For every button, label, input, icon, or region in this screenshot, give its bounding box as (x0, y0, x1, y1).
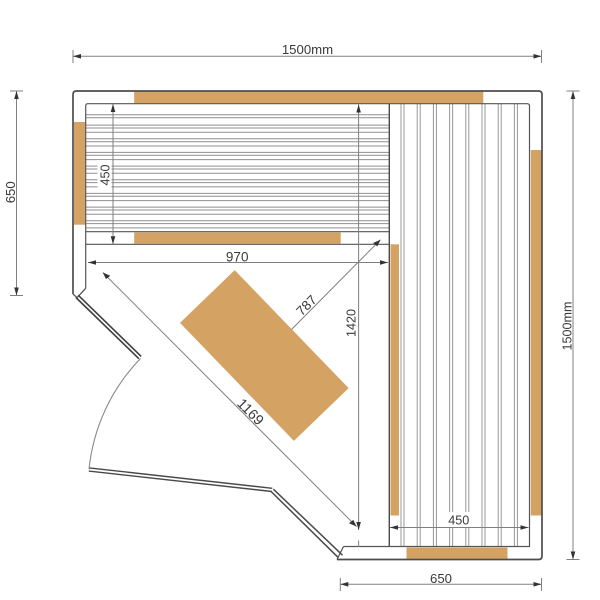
svg-text:450: 450 (99, 164, 113, 185)
svg-text:650: 650 (3, 181, 18, 203)
svg-text:1500mm: 1500mm (282, 42, 333, 57)
svg-text:650: 650 (430, 571, 452, 586)
svg-text:450: 450 (448, 514, 469, 528)
svg-text:1500mm: 1500mm (560, 302, 574, 351)
svg-text:1420: 1420 (344, 309, 358, 337)
svg-text:970: 970 (226, 250, 249, 265)
